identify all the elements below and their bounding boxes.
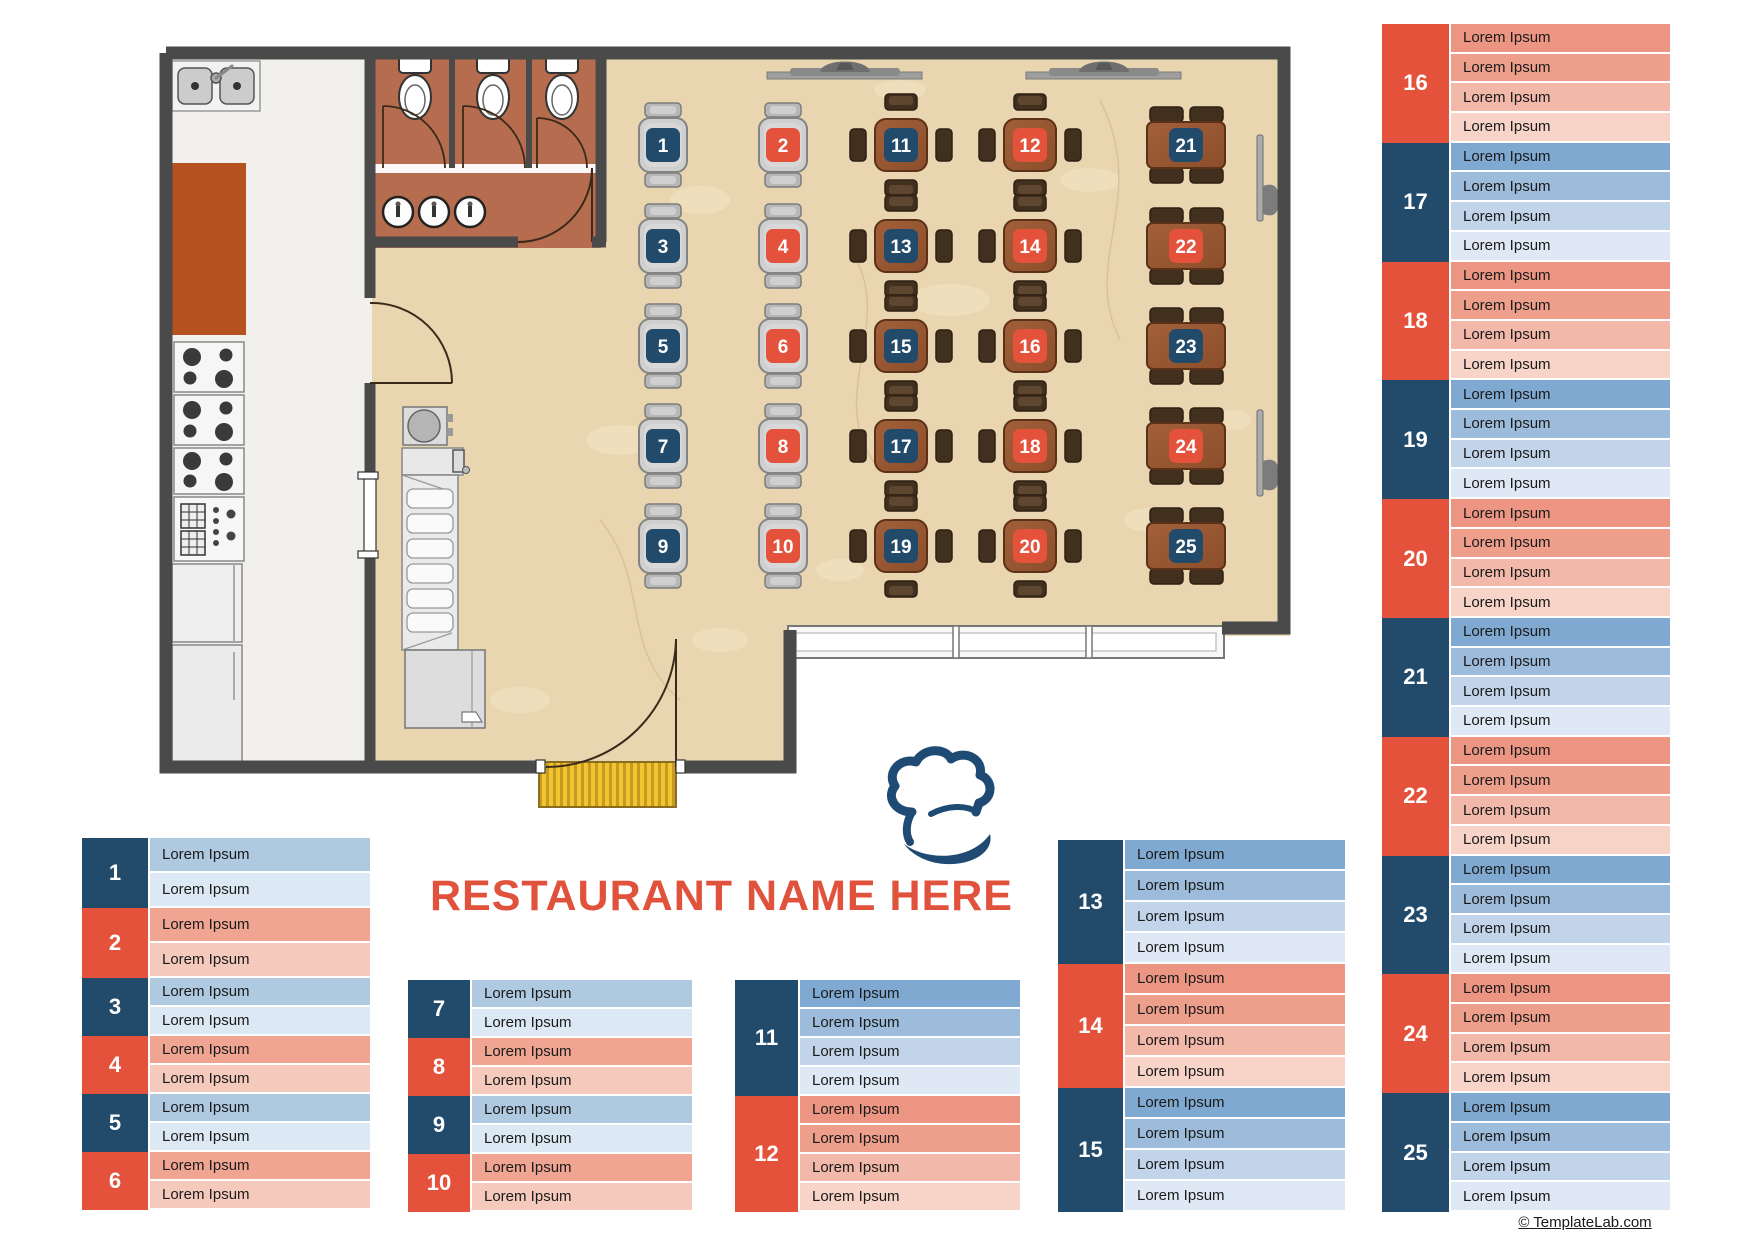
table-number-label: 16 bbox=[1019, 337, 1040, 358]
legend-table-number: 15 bbox=[1058, 1088, 1123, 1212]
table-1: 1 bbox=[639, 103, 687, 187]
legend-row: Lorem Ipsum bbox=[1449, 796, 1670, 826]
legend-row: Lorem Ipsum bbox=[470, 1183, 692, 1212]
table-number-label: 10 bbox=[772, 537, 793, 558]
stove-icon bbox=[174, 342, 244, 494]
legend-row: Lorem Ipsum bbox=[1449, 707, 1670, 737]
legend-row: Lorem Ipsum bbox=[1123, 871, 1345, 902]
legend-row: Lorem Ipsum bbox=[1449, 172, 1670, 202]
legend-row: Lorem Ipsum bbox=[1449, 559, 1670, 589]
legend-row: Lorem Ipsum bbox=[1449, 232, 1670, 262]
legend-tables-11-12: 11Lorem IpsumLorem IpsumLorem IpsumLorem… bbox=[735, 980, 1020, 1212]
legend-row: Lorem Ipsum bbox=[1449, 380, 1670, 410]
legend-row: Lorem Ipsum bbox=[1123, 964, 1345, 995]
legend-table-number: 6 bbox=[82, 1152, 148, 1210]
legend-row: Lorem Ipsum bbox=[470, 1096, 692, 1125]
table-number-label: 1 bbox=[658, 136, 669, 157]
legend-block-13: 13Lorem IpsumLorem IpsumLorem IpsumLorem… bbox=[1058, 840, 1345, 964]
legend-row: Lorem Ipsum bbox=[798, 1038, 1020, 1067]
legend-row: Lorem Ipsum bbox=[1449, 885, 1670, 915]
legend-row: Lorem Ipsum bbox=[1449, 1063, 1670, 1093]
legend-row: Lorem Ipsum bbox=[148, 873, 370, 908]
legend-row: Lorem Ipsum bbox=[1449, 915, 1670, 945]
kitchen-counter bbox=[172, 163, 246, 335]
legend-block-19: 19Lorem IpsumLorem IpsumLorem IpsumLorem… bbox=[1382, 380, 1670, 499]
legend-row: Lorem Ipsum bbox=[1449, 945, 1670, 975]
legend-row: Lorem Ipsum bbox=[1449, 648, 1670, 678]
templatelab-link[interactable]: © TemplateLab.com bbox=[1495, 1214, 1675, 1231]
restroom-sink-icon bbox=[383, 197, 485, 227]
table-number-label: 23 bbox=[1175, 337, 1196, 358]
legend-row: Lorem Ipsum bbox=[1449, 321, 1670, 351]
legend-row: Lorem Ipsum bbox=[798, 1067, 1020, 1096]
legend-row: Lorem Ipsum bbox=[470, 1067, 692, 1096]
legend-row: Lorem Ipsum bbox=[798, 1009, 1020, 1038]
table-number-label: 9 bbox=[658, 537, 669, 558]
entrance-mat bbox=[539, 762, 676, 807]
legend-table-number: 23 bbox=[1382, 856, 1449, 975]
legend-block-20: 20Lorem IpsumLorem IpsumLorem IpsumLorem… bbox=[1382, 499, 1670, 618]
legend-table-number: 24 bbox=[1382, 974, 1449, 1093]
legend-table-number: 20 bbox=[1382, 499, 1449, 618]
legend-table-number: 1 bbox=[82, 838, 148, 908]
legend-row: Lorem Ipsum bbox=[1449, 677, 1670, 707]
legend-tables-13-15: 13Lorem IpsumLorem IpsumLorem IpsumLorem… bbox=[1058, 840, 1345, 1212]
legend-row: Lorem Ipsum bbox=[148, 943, 370, 978]
table-9: 9 bbox=[639, 504, 687, 588]
chef-hat-icon bbox=[891, 751, 990, 864]
legend-row: Lorem Ipsum bbox=[148, 1152, 370, 1181]
legend-row: Lorem Ipsum bbox=[1449, 113, 1670, 143]
refrigerator-icon bbox=[172, 564, 242, 765]
legend-table-number: 22 bbox=[1382, 737, 1449, 856]
legend-row: Lorem Ipsum bbox=[1123, 1088, 1345, 1119]
legend-row: Lorem Ipsum bbox=[1449, 351, 1670, 381]
legend-row: Lorem Ipsum bbox=[148, 1065, 370, 1094]
legend-table-number: 12 bbox=[735, 1096, 798, 1212]
legend-row: Lorem Ipsum bbox=[148, 1181, 370, 1210]
legend-row: Lorem Ipsum bbox=[148, 1123, 370, 1152]
table-number-label: 6 bbox=[778, 337, 789, 358]
legend-table-number: 2 bbox=[82, 908, 148, 978]
table-number-label: 8 bbox=[778, 437, 789, 458]
legend-row: Lorem Ipsum bbox=[1449, 440, 1670, 470]
legend-block-24: 24Lorem IpsumLorem IpsumLorem IpsumLorem… bbox=[1382, 974, 1670, 1093]
legend-row: Lorem Ipsum bbox=[1123, 933, 1345, 964]
page-title: RESTAURANT NAME HERE bbox=[430, 872, 1010, 921]
legend-row: Lorem Ipsum bbox=[1449, 974, 1670, 1004]
legend-row: Lorem Ipsum bbox=[1449, 588, 1670, 618]
legend-block-10: 10Lorem IpsumLorem Ipsum bbox=[408, 1154, 692, 1212]
table-number-label: 21 bbox=[1175, 136, 1197, 157]
legend-table-number: 16 bbox=[1382, 24, 1449, 143]
legend-table-number: 3 bbox=[82, 978, 148, 1036]
legend-block-14: 14Lorem IpsumLorem IpsumLorem IpsumLorem… bbox=[1058, 964, 1345, 1088]
legend-row: Lorem Ipsum bbox=[1449, 737, 1670, 767]
table-8: 8 bbox=[759, 404, 807, 488]
window-bench bbox=[788, 626, 1224, 658]
table-number-label: 19 bbox=[890, 537, 911, 558]
legend-row: Lorem Ipsum bbox=[1449, 499, 1670, 529]
table-4: 4 bbox=[759, 204, 807, 288]
legend-block-18: 18Lorem IpsumLorem IpsumLorem IpsumLorem… bbox=[1382, 262, 1670, 381]
legend-row: Lorem Ipsum bbox=[798, 1154, 1020, 1183]
table-number-label: 15 bbox=[890, 337, 912, 358]
legend-table-number: 5 bbox=[82, 1094, 148, 1152]
legend-block-23: 23Lorem IpsumLorem IpsumLorem IpsumLorem… bbox=[1382, 856, 1670, 975]
legend-row: Lorem Ipsum bbox=[1449, 826, 1670, 856]
legend-row: Lorem Ipsum bbox=[798, 980, 1020, 1009]
legend-row: Lorem Ipsum bbox=[1449, 766, 1670, 796]
legend-row: Lorem Ipsum bbox=[470, 1125, 692, 1154]
legend-table-number: 11 bbox=[735, 980, 798, 1096]
legend-table-number: 7 bbox=[408, 980, 470, 1038]
legend-row: Lorem Ipsum bbox=[470, 1009, 692, 1038]
legend-row: Lorem Ipsum bbox=[1123, 995, 1345, 1026]
floor-plan: 1234567891011121314151617181920212223242… bbox=[0, 0, 1320, 830]
legend-block-3: 3Lorem IpsumLorem Ipsum bbox=[82, 978, 370, 1036]
legend-tables-1-6: 1Lorem IpsumLorem Ipsum2Lorem IpsumLorem… bbox=[82, 838, 370, 1210]
table-number-label: 2 bbox=[778, 136, 789, 157]
legend-table-number: 14 bbox=[1058, 964, 1123, 1088]
legend-block-8: 8Lorem IpsumLorem Ipsum bbox=[408, 1038, 692, 1096]
legend-table-number: 10 bbox=[408, 1154, 470, 1212]
table-number-label: 13 bbox=[890, 237, 911, 258]
table-number-label: 11 bbox=[891, 136, 912, 157]
table-10: 10 bbox=[759, 504, 807, 588]
legend-row: Lorem Ipsum bbox=[470, 1154, 692, 1183]
legend-row: Lorem Ipsum bbox=[1449, 410, 1670, 440]
legend-row: Lorem Ipsum bbox=[1449, 1123, 1670, 1153]
legend-row: Lorem Ipsum bbox=[1123, 1150, 1345, 1181]
legend-block-21: 21Lorem IpsumLorem IpsumLorem IpsumLorem… bbox=[1382, 618, 1670, 737]
table-number-label: 24 bbox=[1175, 437, 1197, 458]
legend-block-15: 15Lorem IpsumLorem IpsumLorem IpsumLorem… bbox=[1058, 1088, 1345, 1212]
legend-block-25: 25Lorem IpsumLorem IpsumLorem IpsumLorem… bbox=[1382, 1093, 1670, 1212]
table-number-label: 3 bbox=[658, 237, 669, 258]
legend-row: Lorem Ipsum bbox=[470, 980, 692, 1009]
legend-table-number: 13 bbox=[1058, 840, 1123, 964]
table-number-label: 7 bbox=[658, 437, 669, 458]
legend-table-number: 8 bbox=[408, 1038, 470, 1096]
kitchen-sink-icon bbox=[172, 61, 260, 111]
legend-block-17: 17Lorem IpsumLorem IpsumLorem IpsumLorem… bbox=[1382, 143, 1670, 262]
restaurant-seating-chart: 1234567891011121314151617181920212223242… bbox=[0, 0, 1754, 1240]
legend-block-9: 9Lorem IpsumLorem Ipsum bbox=[408, 1096, 692, 1154]
legend-row: Lorem Ipsum bbox=[1123, 1026, 1345, 1057]
legend-tables-16-25: 16Lorem IpsumLorem IpsumLorem IpsumLorem… bbox=[1382, 24, 1670, 1212]
table-5: 5 bbox=[639, 304, 687, 388]
table-number-label: 25 bbox=[1175, 537, 1197, 558]
legend-block-11: 11Lorem IpsumLorem IpsumLorem IpsumLorem… bbox=[735, 980, 1020, 1096]
table-number-label: 22 bbox=[1175, 237, 1196, 258]
legend-row: Lorem Ipsum bbox=[798, 1183, 1020, 1212]
chef-hat-logo bbox=[876, 744, 1016, 876]
legend-row: Lorem Ipsum bbox=[1123, 1181, 1345, 1212]
legend-table-number: 17 bbox=[1382, 143, 1449, 262]
legend-block-12: 12Lorem IpsumLorem IpsumLorem IpsumLorem… bbox=[735, 1096, 1020, 1212]
legend-row: Lorem Ipsum bbox=[1449, 529, 1670, 559]
legend-block-22: 22Lorem IpsumLorem IpsumLorem IpsumLorem… bbox=[1382, 737, 1670, 856]
legend-row: Lorem Ipsum bbox=[1449, 143, 1670, 173]
legend-row: Lorem Ipsum bbox=[1123, 1057, 1345, 1088]
legend-row: Lorem Ipsum bbox=[470, 1038, 692, 1067]
legend-tables-7-10: 7Lorem IpsumLorem Ipsum8Lorem IpsumLorem… bbox=[408, 980, 692, 1212]
gas-range-icon bbox=[174, 497, 244, 561]
legend-block-4: 4Lorem IpsumLorem Ipsum bbox=[82, 1036, 370, 1094]
legend-block-2: 2Lorem IpsumLorem Ipsum bbox=[82, 908, 370, 978]
table-6: 6 bbox=[759, 304, 807, 388]
legend-row: Lorem Ipsum bbox=[1449, 618, 1670, 648]
table-number-label: 20 bbox=[1019, 537, 1040, 558]
legend-row: Lorem Ipsum bbox=[1449, 54, 1670, 84]
table-number-label: 12 bbox=[1019, 136, 1040, 157]
legend-row: Lorem Ipsum bbox=[148, 1094, 370, 1123]
legend-row: Lorem Ipsum bbox=[1449, 202, 1670, 232]
legend-block-6: 6Lorem IpsumLorem Ipsum bbox=[82, 1152, 370, 1210]
legend-row: Lorem Ipsum bbox=[1123, 840, 1345, 871]
legend-row: Lorem Ipsum bbox=[1449, 1182, 1670, 1212]
legend-row: Lorem Ipsum bbox=[1449, 83, 1670, 113]
legend-row: Lorem Ipsum bbox=[1449, 469, 1670, 499]
table-number-label: 5 bbox=[658, 337, 669, 358]
table-7: 7 bbox=[639, 404, 687, 488]
table-3: 3 bbox=[639, 204, 687, 288]
legend-table-number: 9 bbox=[408, 1096, 470, 1154]
coffee-machine-icon bbox=[408, 410, 440, 442]
legend-block-5: 5Lorem IpsumLorem Ipsum bbox=[82, 1094, 370, 1152]
legend-row: Lorem Ipsum bbox=[1449, 1093, 1670, 1123]
legend-block-16: 16Lorem IpsumLorem IpsumLorem IpsumLorem… bbox=[1382, 24, 1670, 143]
legend-row: Lorem Ipsum bbox=[1449, 1034, 1670, 1064]
legend-table-number: 25 bbox=[1382, 1093, 1449, 1212]
table-2: 2 bbox=[759, 103, 807, 187]
legend-block-7: 7Lorem IpsumLorem Ipsum bbox=[408, 980, 692, 1038]
table-number-label: 17 bbox=[890, 437, 911, 458]
legend-row: Lorem Ipsum bbox=[148, 978, 370, 1007]
table-number-label: 14 bbox=[1019, 237, 1041, 258]
legend-row: Lorem Ipsum bbox=[148, 1036, 370, 1065]
legend-row: Lorem Ipsum bbox=[1449, 24, 1670, 54]
legend-row: Lorem Ipsum bbox=[1123, 902, 1345, 933]
table-number-label: 4 bbox=[778, 237, 789, 258]
table-number-label: 18 bbox=[1019, 437, 1040, 458]
legend-row: Lorem Ipsum bbox=[148, 838, 370, 873]
legend-row: Lorem Ipsum bbox=[1449, 291, 1670, 321]
legend-table-number: 21 bbox=[1382, 618, 1449, 737]
legend-row: Lorem Ipsum bbox=[148, 1007, 370, 1036]
legend-block-1: 1Lorem IpsumLorem Ipsum bbox=[82, 838, 370, 908]
legend-table-number: 19 bbox=[1382, 380, 1449, 499]
legend-row: Lorem Ipsum bbox=[1449, 1153, 1670, 1183]
legend-row: Lorem Ipsum bbox=[1449, 262, 1670, 292]
legend-row: Lorem Ipsum bbox=[1449, 1004, 1670, 1034]
legend-table-number: 4 bbox=[82, 1036, 148, 1094]
legend-row: Lorem Ipsum bbox=[798, 1125, 1020, 1154]
legend-row: Lorem Ipsum bbox=[148, 908, 370, 943]
legend-row: Lorem Ipsum bbox=[1449, 856, 1670, 886]
legend-row: Lorem Ipsum bbox=[798, 1096, 1020, 1125]
legend-table-number: 18 bbox=[1382, 262, 1449, 381]
legend-row: Lorem Ipsum bbox=[1123, 1119, 1345, 1150]
